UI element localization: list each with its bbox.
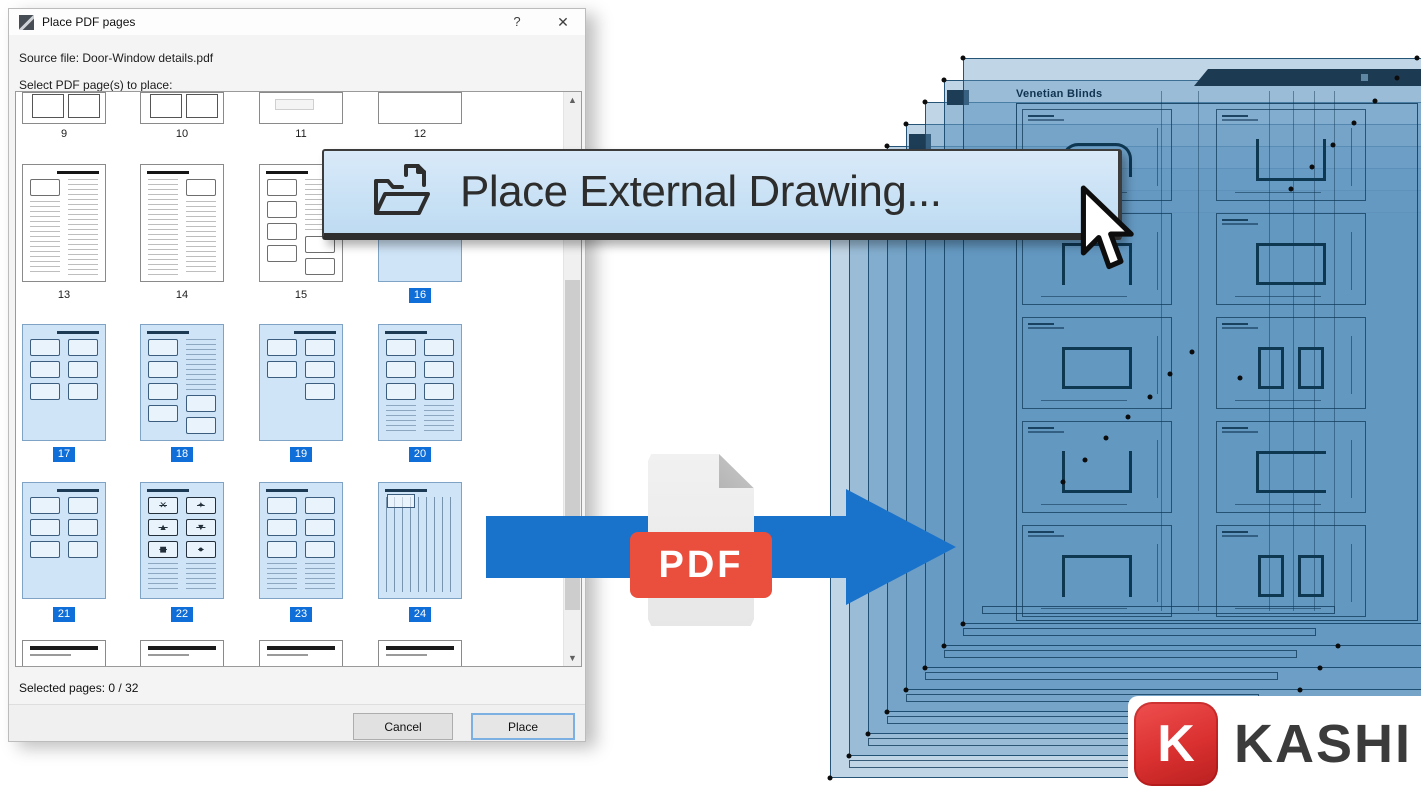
vertex-dot (961, 56, 966, 61)
mouse-cursor-icon (1080, 184, 1138, 274)
pdf-page-thumbnail[interactable] (378, 324, 462, 441)
vertex-dot (942, 78, 947, 83)
detail-cell (1216, 317, 1366, 409)
selected-pages-status: Selected pages: 0 / 32 (19, 681, 138, 695)
page-number-label[interactable]: 24 (409, 607, 431, 622)
vertex-dot (1331, 143, 1336, 148)
vertex-dot (1373, 99, 1378, 104)
place-button[interactable]: Place (471, 713, 575, 740)
vertex-dot (1148, 395, 1153, 400)
page-number-label-wrap: 24 (378, 606, 462, 622)
page-number-label-wrap: 9 (22, 126, 106, 142)
detail-cell (1216, 213, 1366, 305)
vertex-dot (1061, 480, 1066, 485)
vertex-dot (1083, 458, 1088, 463)
vertex-dot (828, 776, 833, 781)
vertex-dot (923, 666, 928, 671)
help-button[interactable]: ? (505, 14, 529, 29)
vertex-dot (904, 122, 909, 127)
pdf-page-thumbnail[interactable] (22, 640, 106, 667)
pdf-page-thumbnail[interactable]: ✕▲◼✦▼● (140, 482, 224, 599)
cancel-button[interactable]: Cancel (353, 713, 453, 740)
profile-drawing (1256, 555, 1326, 597)
page-number-label[interactable]: 13 (53, 288, 75, 303)
detail-cell (1216, 421, 1366, 513)
vertex-dot (1126, 415, 1131, 420)
vertex-dot (1104, 436, 1109, 441)
page-number-label[interactable]: 21 (53, 607, 75, 622)
vertex-dot (942, 644, 947, 649)
place-external-drawing-menu-item[interactable]: Place External Drawing... (322, 149, 1122, 240)
page-number-label-wrap: 12 (378, 126, 462, 142)
vertex-dot (1318, 666, 1323, 671)
app-icon (19, 15, 34, 30)
profile-drawing (1062, 347, 1132, 389)
dialog-titlebar[interactable]: Place PDF pages ? ✕ (9, 9, 585, 35)
close-icon[interactable]: ✕ (551, 14, 575, 31)
pdf-page-thumbnail[interactable] (140, 324, 224, 441)
vertex-dot (1289, 187, 1294, 192)
vertex-dot (885, 144, 890, 149)
vertex-dot (866, 732, 871, 737)
pdf-page-thumbnail[interactable] (259, 324, 343, 441)
kashi-logo: K KASHI (1128, 696, 1421, 792)
pdf-page-thumbnail[interactable] (22, 482, 106, 599)
scroll-up-icon[interactable]: ▲ (564, 92, 581, 108)
pdf-page-thumbnail[interactable] (259, 92, 343, 124)
page-number-label-wrap: 19 (259, 446, 343, 462)
vertex-dot (961, 622, 966, 627)
detail-cell (1022, 421, 1172, 513)
front-drawing-sheet: Venetian Blinds (963, 58, 1421, 624)
profile-drawing (1062, 451, 1132, 493)
page-number-label[interactable]: 17 (53, 447, 75, 462)
page-number-label-wrap: 22 (140, 606, 224, 622)
vertex-dot (904, 688, 909, 693)
pdf-page-thumbnail[interactable] (378, 640, 462, 667)
page-number-label-wrap: 21 (22, 606, 106, 622)
profile-drawing (1256, 243, 1326, 285)
vertex-dot (1352, 121, 1357, 126)
page-number-label-wrap: 11 (259, 126, 343, 142)
vertex-dot (1310, 165, 1315, 170)
source-file-label: Source file: Door-Window details.pdf (19, 51, 213, 65)
profile-drawing (1256, 347, 1326, 389)
page-number-label[interactable]: 14 (171, 288, 193, 303)
detail-cell (1022, 525, 1172, 617)
page-number-label[interactable]: 11 (290, 127, 311, 142)
scroll-down-icon[interactable]: ▼ (564, 650, 581, 666)
select-pages-label: Select PDF page(s) to place: (19, 78, 172, 92)
vertex-dot (1238, 376, 1243, 381)
page-number-label[interactable]: 15 (290, 288, 312, 303)
open-folder-icon (368, 161, 434, 223)
page-number-label[interactable]: 18 (171, 447, 193, 462)
page-number-label[interactable]: 23 (290, 607, 312, 622)
vertex-dot (1298, 688, 1303, 693)
page-number-label[interactable]: 19 (290, 447, 312, 462)
profile-drawing (1256, 451, 1326, 493)
page-number-label-wrap: 15 (259, 287, 343, 303)
detail-cell (1216, 525, 1366, 617)
page-number-label[interactable]: 22 (171, 607, 193, 622)
page-number-label-wrap: 17 (22, 446, 106, 462)
page-number-label[interactable]: 10 (171, 127, 193, 142)
page-number-label-wrap: 23 (259, 606, 343, 622)
page-number-label-wrap: 14 (140, 287, 224, 303)
vertex-dot (1395, 76, 1400, 81)
vertex-dot (1168, 372, 1173, 377)
vertex-dot (1336, 644, 1341, 649)
pdf-page-thumbnail[interactable] (22, 324, 106, 441)
vertex-dot (923, 100, 928, 105)
dimension-line (1198, 91, 1199, 611)
pdf-page-thumbnail[interactable] (22, 164, 106, 282)
page-number-label-wrap: 20 (378, 446, 462, 462)
pdf-page-thumbnail[interactable] (22, 92, 106, 124)
pdf-badge: PDF (630, 532, 772, 598)
vertex-dot (1190, 350, 1195, 355)
page-number-label[interactable]: 16 (409, 288, 431, 303)
pdf-page-thumbnail[interactable] (259, 482, 343, 599)
profile-drawing (1062, 555, 1132, 597)
pdf-page-thumbnail[interactable] (378, 92, 462, 124)
pdf-page-thumbnail[interactable] (140, 92, 224, 124)
pdf-page-thumbnail[interactable] (378, 482, 462, 599)
profile-drawing (1256, 139, 1326, 181)
page-number-label[interactable]: 20 (409, 447, 431, 462)
pdf-page-thumbnail[interactable] (259, 640, 343, 667)
page-number-label[interactable]: 9 (56, 127, 72, 142)
vertex-dot (1415, 56, 1420, 61)
stage: Venetian Blinds K KASHI Place PDF pages … (0, 0, 1421, 800)
page-number-label-wrap: 16 (378, 287, 462, 303)
pdf-page-thumbnail[interactable] (140, 640, 224, 667)
sheet-header-tag (1361, 74, 1368, 81)
sheet-title: Venetian Blinds (1016, 88, 1102, 100)
pdf-page-thumbnail[interactable] (140, 164, 224, 282)
page-number-label-wrap: 13 (22, 287, 106, 303)
kashi-logo-text: KASHI (1234, 713, 1412, 775)
sheet-header-bar (1194, 69, 1421, 86)
kashi-logo-icon: K (1134, 702, 1218, 786)
dialog-title: Place PDF pages (42, 15, 135, 29)
menu-item-label: Place External Drawing... (460, 167, 942, 217)
vertex-dot (885, 710, 890, 715)
vertex-dot (847, 754, 852, 759)
page-number-label[interactable]: 12 (409, 127, 431, 142)
place-pdf-pages-dialog: Place PDF pages ? ✕ Source file: Door-Wi… (8, 8, 586, 742)
pdf-file-icon: PDF (648, 454, 754, 626)
page-number-label-wrap: 10 (140, 126, 224, 142)
page-number-label-wrap: 18 (140, 446, 224, 462)
